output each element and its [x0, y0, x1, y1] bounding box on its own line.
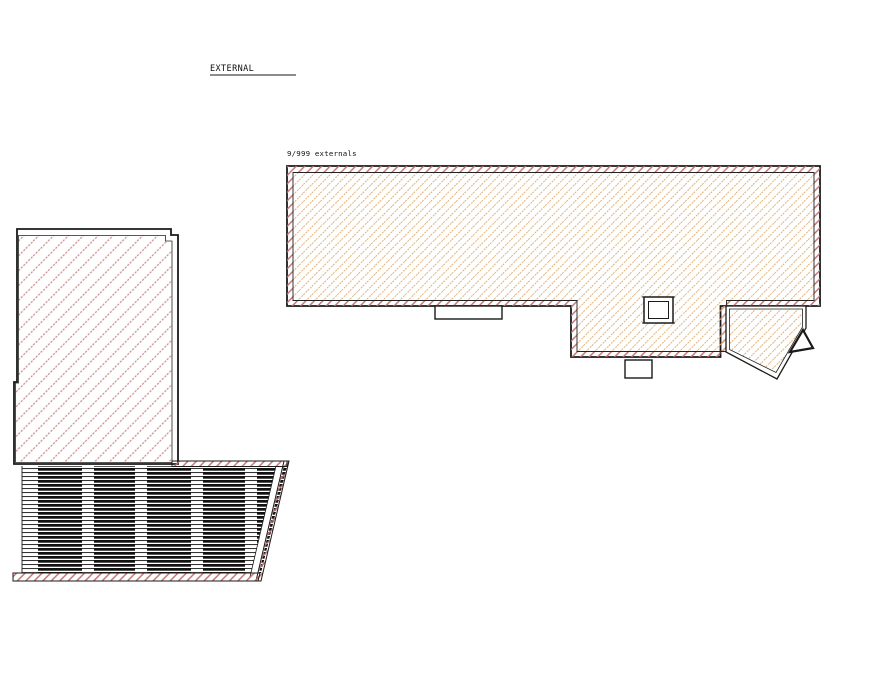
edge-notch-rect[interactable]	[435, 306, 502, 319]
drawing-title: EXTERNAL	[210, 64, 254, 74]
externals-label: 9/999 externals	[287, 149, 357, 158]
drawing-canvas[interactable]: EXTERNAL 9/999 externals	[0, 0, 876, 696]
left-roof-hatch-field	[16, 236, 173, 463]
roof-opening[interactable]	[642, 297, 675, 323]
roof-opening-inner	[649, 302, 669, 319]
deck-area[interactable]	[13, 461, 290, 581]
bay-hatch-field	[730, 309, 803, 373]
bay-projection[interactable]	[726, 306, 813, 379]
edge-tab-rect[interactable]	[625, 360, 652, 378]
deck-top-band	[172, 461, 287, 467]
main-external-roof[interactable]	[287, 166, 820, 379]
left-roof[interactable]	[14, 229, 178, 464]
deck-bottom-band	[13, 573, 260, 581]
